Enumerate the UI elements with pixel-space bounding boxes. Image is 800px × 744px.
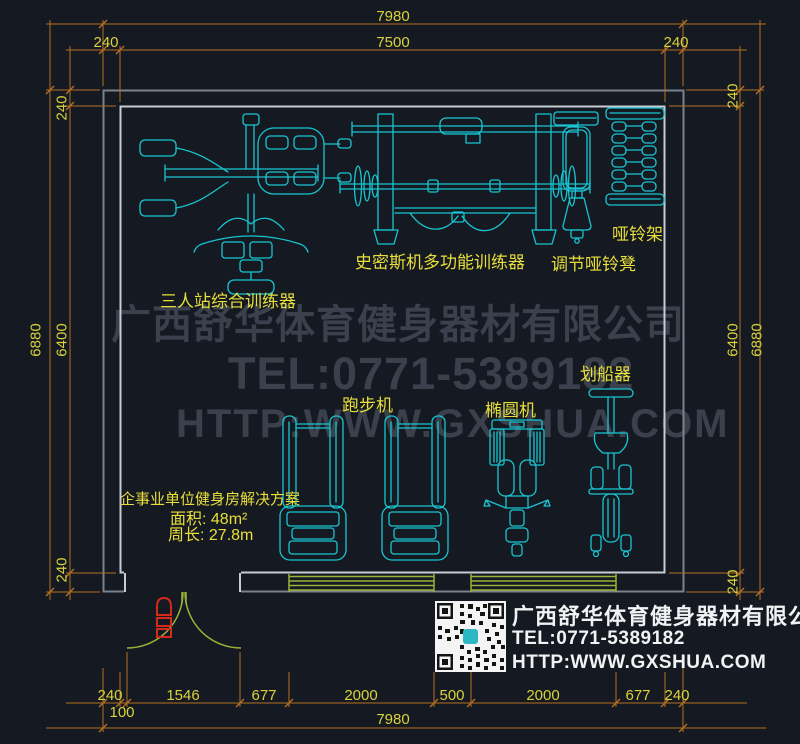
footer-company: 广西舒华体育健身器材有限公司 <box>512 599 800 631</box>
dim-left-top-offset: 240 <box>54 95 71 120</box>
dim-right-inner: 6400 <box>725 323 742 356</box>
window-strips <box>289 574 616 592</box>
label-treadmill: 跑步机 <box>342 391 393 416</box>
qr-code <box>435 601 506 672</box>
dim-bottom-sub-offset: 100 <box>109 704 134 721</box>
door-marker-icon <box>157 598 171 637</box>
dim-left-bottom-offset: 240 <box>54 557 71 582</box>
dim-left-inner: 6400 <box>54 323 71 356</box>
dim-bottom-seg-4: 500 <box>439 687 464 704</box>
cad-drawing-canvas: 广西舒华体育健身器材有限公司 TEL:0771-5389182 HTTP:WWW… <box>0 0 800 744</box>
dim-bottom-seg-3: 2000 <box>344 687 377 704</box>
door-opening <box>124 568 241 596</box>
dim-right-top-offset: 240 <box>725 83 742 108</box>
dim-bottom-seg-0: 240 <box>97 687 122 704</box>
footer-tel: TEL:0771-5389182 <box>512 628 685 650</box>
label-elliptical: 椭圆机 <box>485 396 536 421</box>
dim-bottom-seg-2: 677 <box>251 687 276 704</box>
dim-left-overall: 6880 <box>28 323 45 356</box>
treadmill-2-drawing <box>382 416 448 560</box>
dim-bottom-seg-5: 2000 <box>526 687 559 704</box>
dim-top-right-offset: 240 <box>663 34 688 51</box>
qr-center-logo <box>463 629 478 644</box>
dim-top-overall: 7980 <box>376 8 409 25</box>
info-perimeter: 周长: 27.8m <box>168 521 253 545</box>
elliptical-drawing <box>484 420 550 556</box>
footer-web: HTTP:WWW.GXSHUA.COM <box>512 652 766 674</box>
label-rower: 划船器 <box>580 360 631 385</box>
dim-top-inner: 7500 <box>376 34 409 51</box>
dim-bottom-seg-6: 677 <box>625 687 650 704</box>
label-smith-machine: 史密斯机多功能训练器 <box>355 248 525 273</box>
dim-right-overall: 6880 <box>749 323 766 356</box>
label-dumbbell-rack: 哑铃架 <box>612 220 663 245</box>
dim-bottom-seg-1: 1546 <box>166 687 199 704</box>
dim-bottom-overall: 7980 <box>376 711 409 728</box>
three-station-trainer-drawing <box>140 114 351 294</box>
label-dumbbell-bench: 调节哑铃凳 <box>551 250 636 275</box>
dim-bottom-seg-7: 240 <box>664 687 689 704</box>
dim-top-left-offset: 240 <box>93 34 118 51</box>
dumbbell-rack-drawing <box>606 108 664 205</box>
smith-machine-drawing <box>340 114 590 244</box>
label-three-station-trainer: 三人站综合训练器 <box>160 287 296 312</box>
door-swing <box>127 592 241 648</box>
dim-right-bottom-offset: 240 <box>725 569 742 594</box>
rower-drawing <box>589 389 633 557</box>
